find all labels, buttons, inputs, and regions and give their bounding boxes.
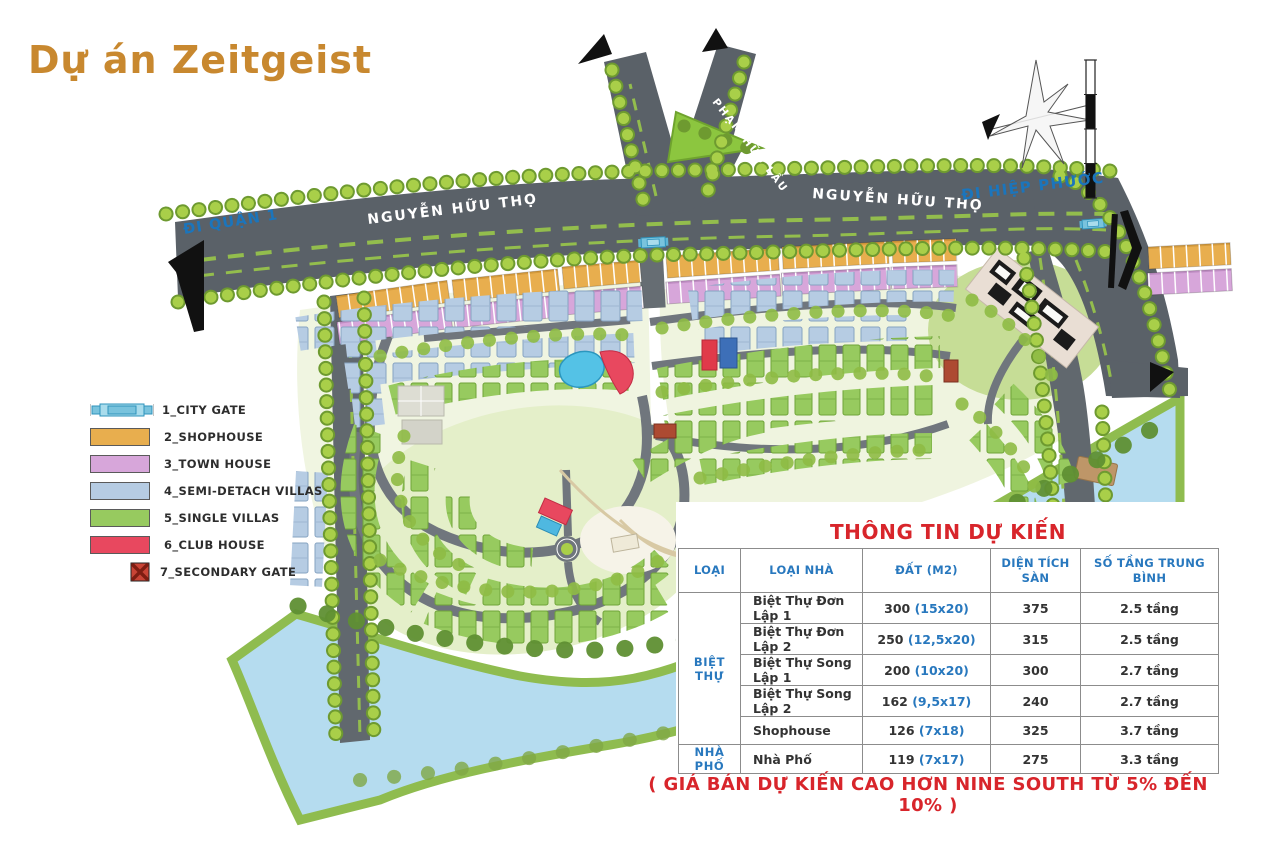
club-house-east xyxy=(702,338,737,370)
land-cell: 200 (10x20) xyxy=(863,655,991,686)
poster-canvas: NGUYỄN HỮU THỌ NGUYỄN HỮU THỌ PHẠM HỮU L… xyxy=(0,0,1280,847)
info-table-title: THÔNG TIN DỰ KIẾN xyxy=(678,520,1218,544)
table-row: NHÀ PHỐ Nhà Phố 119 (7x17) 275 3.3 tầng xyxy=(679,745,1219,774)
floor-area-cell: 315 xyxy=(991,624,1081,655)
legend-label: 3_TOWN HOUSE xyxy=(164,457,271,471)
info-table: LOẠI LOẠI NHÀ ĐẤT (M2) DIỆN TÍCH SÀN SỐ … xyxy=(678,548,1219,774)
house-type-cell: Nhà Phố xyxy=(741,745,863,774)
legend-label: 5_SINGLE VILLAS xyxy=(164,511,280,525)
single-villas-swatch xyxy=(90,509,150,527)
floors-cell: 3.7 tầng xyxy=(1081,717,1219,745)
land-cell: 162 (9,5x17) xyxy=(863,686,991,717)
floor-area-cell: 300 xyxy=(991,655,1081,686)
house-type-cell: Biệt Thự Song Lập 1 xyxy=(741,655,863,686)
table-row: BIỆT THỰ Biệt Thự Đơn Lập 1 300 (15x20) … xyxy=(679,593,1219,624)
town-house-swatch xyxy=(90,455,150,473)
west-arrow xyxy=(168,240,204,332)
floor-area-cell: 375 xyxy=(991,593,1081,624)
shophouse-swatch xyxy=(90,428,150,446)
legend-item-city-gate: 1_CITY GATE xyxy=(90,396,320,423)
semi-detach-swatch xyxy=(90,482,150,500)
price-caption: ( GIÁ BÁN DỰ KIẾN CAO HƠN NINE SOUTH TỪ … xyxy=(648,774,1208,816)
legend: 1_CITY GATE 2_SHOPHOUSE 3_TOWN HOUSE 4_S… xyxy=(90,396,320,585)
land-cell: 119 (7x17) xyxy=(863,745,991,774)
col-header-dien-tich-san: DIỆN TÍCH SÀN xyxy=(991,549,1081,593)
north-arrow-right xyxy=(702,28,728,52)
floor-area-cell: 325 xyxy=(991,717,1081,745)
floor-area-cell: 240 xyxy=(991,686,1081,717)
floor-area-cell: 275 xyxy=(991,745,1081,774)
city-gate-icon xyxy=(90,400,154,420)
land-cell: 126 (7x18) xyxy=(863,717,991,745)
group-cell-nha-pho: NHÀ PHỐ xyxy=(679,745,741,774)
legend-label: 4_SEMI-DETACH VILLAS xyxy=(164,484,323,498)
table-row: Shophouse 126 (7x18) 325 3.7 tầng xyxy=(679,717,1219,745)
house-type-cell: Shophouse xyxy=(741,717,863,745)
col-header-dat: ĐẤT (M2) xyxy=(863,549,991,593)
land-cell: 250 (12,5x20) xyxy=(863,624,991,655)
legend-label: 6_CLUB HOUSE xyxy=(164,538,265,552)
legend-item-semi-detach: 4_SEMI-DETACH VILLAS xyxy=(90,477,320,504)
house-type-cell: Biệt Thự Song Lập 2 xyxy=(741,686,863,717)
roundabout xyxy=(554,536,580,562)
group-cell-biet-thu: BIỆT THỰ xyxy=(679,593,741,745)
page-title: Dự án Zeitgeist xyxy=(28,38,372,82)
legend-item-shophouse: 2_SHOPHOUSE xyxy=(90,423,320,450)
legend-item-single-villas: 5_SINGLE VILLAS xyxy=(90,504,320,531)
table-row: Biệt Thự Đơn Lập 2 250 (12,5x20) 315 2.5… xyxy=(679,624,1219,655)
legend-label: 1_CITY GATE xyxy=(162,403,246,417)
compass-icon xyxy=(982,60,1093,168)
col-header-loai-nha: LOẠI NHÀ xyxy=(741,549,863,593)
floors-cell: 2.5 tầng xyxy=(1081,593,1219,624)
table-row: Biệt Thự Song Lập 1 200 (10x20) 300 2.7 … xyxy=(679,655,1219,686)
house-type-cell: Biệt Thự Đơn Lập 1 xyxy=(741,593,863,624)
legend-label: 7_SECONDARY GATE xyxy=(160,565,296,579)
floors-cell: 2.7 tầng xyxy=(1081,686,1219,717)
land-cell: 300 (15x20) xyxy=(863,593,991,624)
legend-item-town-house: 3_TOWN HOUSE xyxy=(90,450,320,477)
table-header-row: LOẠI LOẠI NHÀ ĐẤT (M2) DIỆN TÍCH SÀN SỐ … xyxy=(679,549,1219,593)
floors-cell: 2.7 tầng xyxy=(1081,655,1219,686)
floors-cell: 3.3 tầng xyxy=(1081,745,1219,774)
legend-item-club-house: 6_CLUB HOUSE xyxy=(90,531,320,558)
legend-item-secondary-gate: 7_SECONDARY GATE xyxy=(90,558,320,585)
table-row: Biệt Thự Song Lập 2 162 (9,5x17) 240 2.7… xyxy=(679,686,1219,717)
north-arrow-left xyxy=(578,34,612,64)
col-header-loai: LOẠI xyxy=(679,549,741,593)
legend-label: 2_SHOPHOUSE xyxy=(164,430,263,444)
floors-cell: 2.5 tầng xyxy=(1081,624,1219,655)
city-gate-marker-west xyxy=(638,237,668,249)
house-type-cell: Biệt Thự Đơn Lập 2 xyxy=(741,624,863,655)
col-header-so-tang: SỐ TẦNG TRUNG BÌNH xyxy=(1081,549,1219,593)
secondary-gate-icon xyxy=(130,562,150,582)
club-house-swatch xyxy=(90,536,150,554)
